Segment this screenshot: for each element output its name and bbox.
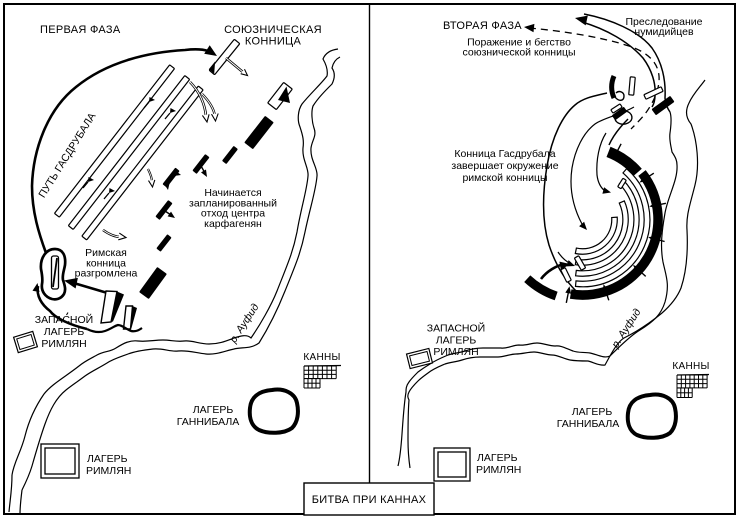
svg-text:РИМЛЯН: РИМЛЯН <box>476 464 521 476</box>
svg-text:карфагенян: карфагенян <box>204 218 262 230</box>
svg-text:РИМЛЯН: РИМЛЯН <box>433 346 478 358</box>
svg-text:римской конницы: римской конницы <box>462 172 547 184</box>
svg-text:завершает окружение: завершает окружение <box>451 160 558 172</box>
svg-text:союзнической конницы: союзнической конницы <box>462 46 575 58</box>
svg-text:Конница Гасдрубала: Конница Гасдрубала <box>454 148 555 160</box>
svg-text:БИТВА ПРИ КАННАХ: БИТВА ПРИ КАННАХ <box>312 494 427 506</box>
svg-text:ЛАГЕРЬ: ЛАГЕРЬ <box>44 326 85 338</box>
svg-text:ЛАГЕРЬ: ЛАГЕРЬ <box>477 452 518 464</box>
svg-text:РИМЛЯН: РИМЛЯН <box>41 338 86 350</box>
svg-text:ГАННИБАЛА: ГАННИБАЛА <box>557 418 620 430</box>
svg-text:ЗАПАСНОЙ: ЗАПАСНОЙ <box>427 322 485 335</box>
svg-text:ВТОРАЯ ФАЗА: ВТОРАЯ ФАЗА <box>443 20 522 32</box>
svg-text:ЛАГЕРЬ: ЛАГЕРЬ <box>87 453 128 465</box>
svg-text:КАННЫ: КАННЫ <box>303 352 340 363</box>
svg-text:ПЕРВАЯ ФАЗА: ПЕРВАЯ ФАЗА <box>40 24 121 36</box>
svg-text:нумидийцев: нумидийцев <box>634 26 694 38</box>
svg-text:ЛАГЕРЬ: ЛАГЕРЬ <box>436 335 477 347</box>
svg-text:разгромлена: разгромлена <box>75 268 138 280</box>
svg-text:СОЮЗНИЧЕСКАЯ: СОЮЗНИЧЕСКАЯ <box>224 24 322 36</box>
svg-text:ЛАГЕРЬ: ЛАГЕРЬ <box>193 404 234 416</box>
svg-text:ГАННИБАЛА: ГАННИБАЛА <box>177 416 240 428</box>
svg-text:РИМЛЯН: РИМЛЯН <box>86 465 131 477</box>
svg-text:ЗАПАСНОЙ: ЗАПАСНОЙ <box>35 313 93 326</box>
svg-text:ЛАГЕРЬ: ЛАГЕРЬ <box>572 406 613 418</box>
svg-text:КАННЫ: КАННЫ <box>672 361 709 372</box>
svg-text:КОННИЦА: КОННИЦА <box>245 36 302 48</box>
